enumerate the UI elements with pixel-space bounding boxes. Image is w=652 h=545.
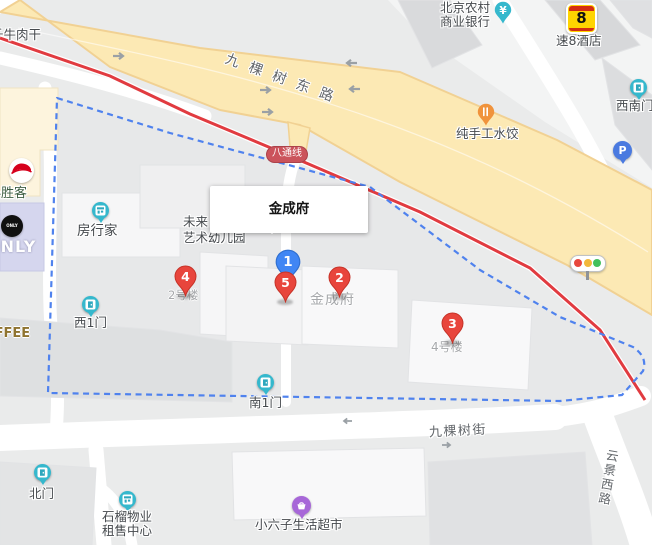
pizza-hut-logo[interactable] (9, 158, 34, 183)
poi-label-hotel[interactable]: 速8酒店 (556, 34, 601, 48)
property-line2: 租售中心 (102, 523, 152, 538)
property-office-icon[interactable] (119, 491, 136, 508)
parking-letter: P (613, 141, 632, 160)
poi-label-dumplings[interactable]: 纯手工水饺 (456, 127, 519, 141)
poi-label-beef-jerky[interactable]: 千牛肉干 (0, 28, 41, 42)
parking-icon[interactable]: P (613, 141, 632, 160)
subway-line-badge[interactable]: 八通线 (266, 146, 308, 163)
super8-eight: 8 (568, 9, 595, 27)
traffic-green (593, 259, 601, 267)
poi-label-pizza-hut[interactable]: 必胜客 (0, 187, 27, 202)
poi-label-property[interactable]: 石榴物业 租售中心 (102, 510, 152, 537)
info-box-title: 金成府 (210, 186, 368, 233)
map-base-layer (0, 0, 652, 545)
traffic-stem (586, 271, 589, 280)
marker-2-number: 2 (328, 270, 351, 285)
poi-label-sw-gate[interactable]: 西南门 (616, 99, 652, 113)
bank-label-line2: 商业银行 (440, 14, 490, 29)
info-box[interactable]: 金成府 (210, 186, 368, 233)
marker-3-number: 3 (441, 316, 464, 331)
poi-label-bank[interactable]: 北京农村 商业银行 (440, 1, 490, 28)
poi-label-fangxingjia[interactable]: 房行家 (77, 224, 118, 239)
poi-label-only[interactable]: ONLY (0, 237, 36, 256)
marker-4-number: 4 (174, 269, 197, 284)
traffic-yellow (584, 259, 592, 267)
marker-3[interactable]: 3 (441, 312, 464, 348)
gate-icon-north[interactable] (34, 464, 51, 481)
traffic-red (574, 259, 582, 267)
pizza-hut-hat-icon (9, 158, 34, 183)
marker-4[interactable]: 4 (174, 265, 197, 301)
only-logo-text: ONLY (1, 215, 23, 237)
bank-pin-icon[interactable]: ¥ (494, 1, 512, 29)
marker-5-number: 5 (274, 275, 297, 290)
poi-label-s-gate[interactable]: 南1门 (249, 396, 282, 410)
poi-label-n-gate[interactable]: 北门 (29, 487, 54, 501)
supermarket-icon[interactable] (292, 496, 311, 515)
agency-icon-fangxingjia[interactable] (92, 202, 109, 219)
super8-red-band-bottom (569, 28, 594, 31)
kindergarten-line1: 未来 (183, 214, 208, 229)
poi-label-coffee[interactable]: COFFEE (0, 326, 30, 341)
only-logo[interactable]: ONLY (1, 215, 23, 237)
gate-icon-southwest[interactable] (630, 79, 647, 96)
marker-2[interactable]: 2 (328, 266, 351, 302)
map-canvas[interactable]: 九棵树东路 九棵树街 云景西路 八通线 千牛肉干 必胜客 ONLY ONLY C… (0, 0, 652, 545)
gate-icon-west1[interactable] (82, 296, 99, 313)
marker-5[interactable]: 5 (274, 271, 297, 307)
svg-text:¥: ¥ (499, 5, 507, 17)
gate-icon-south1[interactable] (257, 374, 274, 391)
poi-label-w-gate[interactable]: 西1门 (74, 316, 107, 330)
marker-1-number: 1 (275, 254, 301, 270)
super8-logo[interactable]: 8 (566, 3, 597, 34)
poi-label-supermarket[interactable]: 小六子生活超市 (255, 518, 343, 532)
road-label-jiukeshu-street: 九棵树街 (429, 423, 488, 441)
